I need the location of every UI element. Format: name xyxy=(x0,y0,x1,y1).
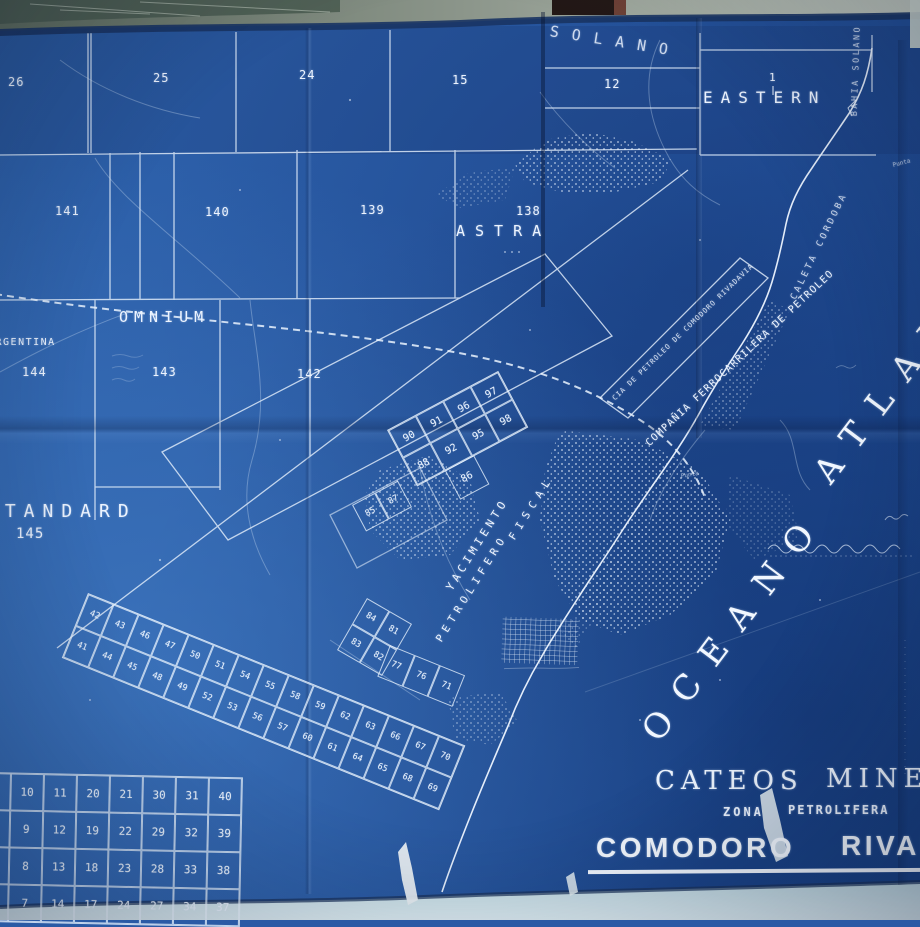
blueprint-map-photo: { "title_block": { "cateos": "CATEOS", "… xyxy=(0,0,920,920)
parcel-number: 140 xyxy=(205,206,230,218)
table-cell: 37 xyxy=(206,889,240,927)
table-cell: 14 xyxy=(41,885,75,923)
table-cell: 20 xyxy=(76,775,110,813)
table-cell: 13 xyxy=(42,848,76,886)
parcel-number: 144 xyxy=(22,366,47,378)
title-rivadavia: RIVADAVIA xyxy=(841,832,920,860)
parcel-number: 145 xyxy=(16,527,44,541)
title-zona: ZONA xyxy=(723,806,764,818)
region-label-standard: STANDARD xyxy=(0,503,137,521)
table-cell: 17 xyxy=(74,886,108,924)
table-cell: 23 xyxy=(108,850,142,888)
table-cell: 24 xyxy=(107,887,141,925)
table-cell: 11 xyxy=(43,774,77,812)
index-table: 10 11 20 21 30 31 40 9 12 19 22 29 32 39… xyxy=(0,772,243,927)
title-mineros: MINEROS xyxy=(826,766,920,792)
table-cell: 39 xyxy=(207,815,241,853)
parcel-number: 142 xyxy=(297,368,322,380)
parcel-number: 15 xyxy=(452,74,468,86)
table-cell: 40 xyxy=(208,778,242,816)
title-petrolifera: PETROLIFERA xyxy=(788,804,889,816)
table-cell: 33 xyxy=(174,851,208,889)
table-cell: 27 xyxy=(140,887,174,925)
title-cateos: CATEOS xyxy=(655,768,804,794)
table-cell: 19 xyxy=(75,812,109,850)
parcel-number: 141 xyxy=(55,205,80,217)
region-label-argentina: ARGENTINA xyxy=(0,338,56,348)
region-label-astra: ASTRA xyxy=(456,224,551,239)
table-cell: 10 xyxy=(10,773,44,811)
table-cell: 21 xyxy=(109,776,143,814)
table-cell: 12 xyxy=(42,811,76,849)
region-label-omnium: OMNIUM xyxy=(119,310,209,325)
table-cell: 22 xyxy=(108,813,142,851)
table-cell: 32 xyxy=(174,814,208,852)
table-cell: 9 xyxy=(9,810,43,848)
table-cell: 28 xyxy=(141,850,175,888)
parcel-number: 1 xyxy=(769,72,776,83)
table-cell: 7 xyxy=(8,884,42,922)
parcel-number: 139 xyxy=(360,204,385,216)
title-comodoro: COMODORO xyxy=(596,834,795,862)
parcel-number: 24 xyxy=(299,69,315,81)
parcel-number: 138 xyxy=(516,205,541,217)
parcel-number: 143 xyxy=(152,366,177,378)
table-cell: 30 xyxy=(142,776,176,814)
table-cell: 38 xyxy=(207,852,241,890)
region-label-eastern: EASTERN xyxy=(703,90,826,106)
table-cell: 18 xyxy=(75,849,109,887)
parcel-number: 12 xyxy=(604,78,620,90)
parcel-number: 25 xyxy=(153,72,169,84)
parcel-number: 26 xyxy=(8,76,24,88)
table-cell: 29 xyxy=(141,813,175,851)
table-cell: 31 xyxy=(175,777,209,815)
table-cell: 8 xyxy=(9,847,43,885)
